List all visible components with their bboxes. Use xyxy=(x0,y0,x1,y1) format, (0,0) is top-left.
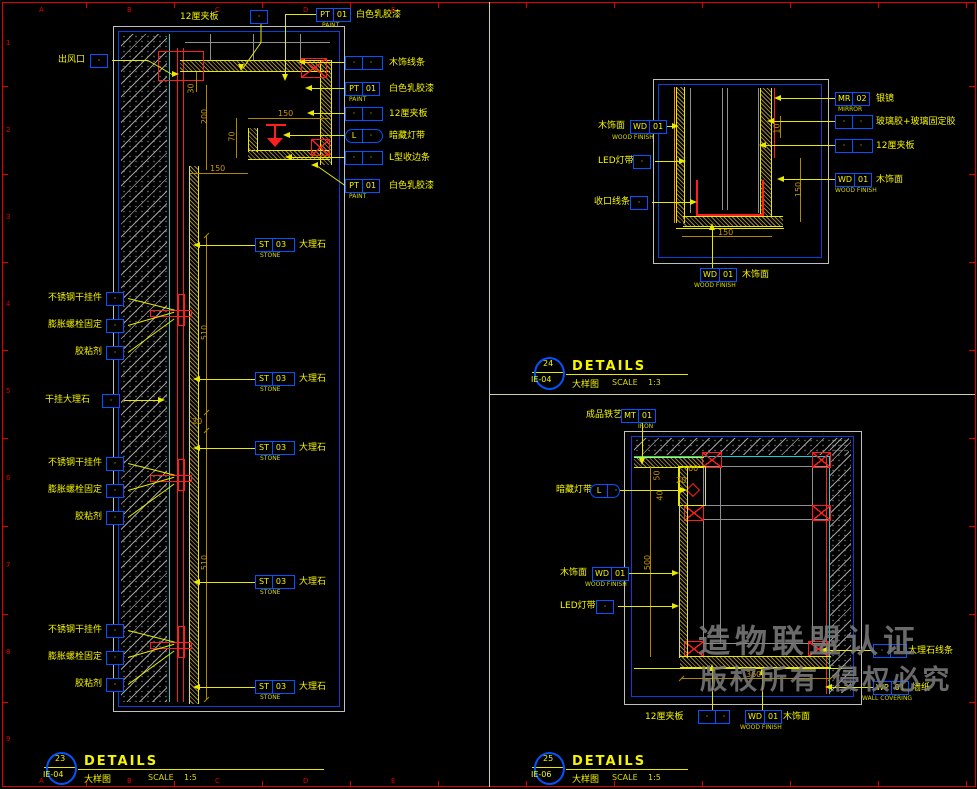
divider-horizontal xyxy=(489,394,975,395)
callout-box: MT 01 xyxy=(621,409,656,423)
leader-line xyxy=(261,23,262,43)
callout-code: · xyxy=(634,156,650,168)
border-tick xyxy=(86,2,87,8)
callout-code: · xyxy=(362,108,379,120)
callout-code: · xyxy=(631,197,647,209)
red-profile xyxy=(762,180,764,216)
row-number: 9 xyxy=(6,735,10,743)
leader-arrow xyxy=(285,154,292,160)
callout-code: · xyxy=(852,140,869,152)
dimension-label: 150 xyxy=(718,228,733,237)
callout-box: PT 01 xyxy=(345,82,380,96)
dimension-label: 510 xyxy=(200,325,209,340)
callout-box: ST 03 xyxy=(255,575,295,589)
callout-code: 01 xyxy=(333,9,350,21)
border-tick xyxy=(969,174,975,175)
dimension-label: 150 xyxy=(278,109,293,118)
border-tick xyxy=(969,262,975,263)
callout-box: L · xyxy=(590,484,620,498)
callout-box: · xyxy=(106,319,124,333)
border-tick xyxy=(2,262,8,263)
callout-subtitle: WOOD FINISH xyxy=(694,282,736,289)
callout-label: 大理石 xyxy=(299,240,326,250)
leader-line xyxy=(285,14,316,15)
callout-code: 01 xyxy=(649,121,666,133)
callout-label: 膨胀螺栓固定 xyxy=(48,485,102,495)
zone-letter: A xyxy=(39,6,44,14)
scale-label: SCALE xyxy=(612,378,638,387)
detail-title: DETAILS xyxy=(572,359,646,374)
callout-subtitle: STONE xyxy=(260,455,280,462)
callout-box: · xyxy=(630,196,648,210)
concrete-wall-hatch xyxy=(121,34,167,702)
watermark-line2: 版权所有 侵权必究 xyxy=(700,658,952,697)
frame-line xyxy=(703,505,828,506)
title-underline xyxy=(566,374,688,375)
callout-code: 01 xyxy=(719,269,736,281)
wood-base-hatch xyxy=(683,216,783,227)
panel-line xyxy=(758,88,759,213)
zone-letter: B xyxy=(127,6,132,14)
callout-box: · xyxy=(633,155,651,169)
zone-letter: C xyxy=(215,777,220,785)
leader-arrow xyxy=(307,110,314,116)
leader-line xyxy=(652,202,694,203)
callout-box: · xyxy=(106,457,124,471)
leader-line xyxy=(285,14,286,76)
callout-subtitle: MIRROR xyxy=(838,106,862,113)
panel-line xyxy=(690,88,691,213)
leader-arrow xyxy=(238,64,244,71)
callout-label: 木饰面 xyxy=(560,568,587,578)
border-tick xyxy=(702,2,703,8)
callout-box: · · xyxy=(345,107,383,121)
callout-box: WD 01 xyxy=(592,567,629,581)
sheet-code: IE-04 xyxy=(43,770,63,779)
callout-code: 03 xyxy=(272,373,289,385)
callout-label: L型收边条 xyxy=(389,153,430,163)
leader-arrow xyxy=(193,242,200,248)
callout-box: · xyxy=(106,678,124,692)
callout-code: 01 xyxy=(362,83,379,95)
scale-value: 1:5 xyxy=(184,773,197,782)
steel-keel-line xyxy=(183,48,184,702)
border-tick xyxy=(878,781,879,787)
detail-name: 大样图 xyxy=(572,377,599,390)
waterproof-line xyxy=(169,34,170,702)
border-tick xyxy=(969,526,975,527)
spotlight-icon xyxy=(266,124,286,126)
callout-label: 干挂大理石 xyxy=(45,395,90,405)
callout-box: · xyxy=(106,651,124,665)
callout-code: · xyxy=(715,711,732,723)
dimension-label: 40 xyxy=(656,490,665,500)
callout-label: 胶粘剂 xyxy=(75,347,102,357)
dimension-label: 10 xyxy=(773,123,782,133)
detail-number: 25 xyxy=(543,754,553,763)
callout-box: ST 03 xyxy=(255,372,295,386)
callout-code: · xyxy=(107,512,123,524)
leader-arrow xyxy=(774,95,781,101)
ceiling-line xyxy=(185,42,330,43)
callout-code: 03 xyxy=(272,239,289,251)
callout-code: · xyxy=(836,140,852,152)
leader-arrow xyxy=(679,158,686,164)
dimension-label: 200 xyxy=(200,109,209,124)
edge-detail-red xyxy=(158,51,204,81)
border-tick xyxy=(966,2,967,8)
dim-line xyxy=(190,173,248,174)
callout-box: · · xyxy=(698,710,730,724)
callout-subtitle: STONE xyxy=(260,694,280,701)
callout-code: · xyxy=(597,601,613,613)
leader-arrow xyxy=(672,123,679,129)
leader-arrow xyxy=(777,176,784,182)
border-tick xyxy=(969,350,975,351)
callout-code: 01 xyxy=(611,568,628,580)
dimension-label: 150 xyxy=(794,182,803,197)
border-tick xyxy=(878,2,879,8)
dimension-label: 70 xyxy=(228,131,237,141)
callout-subtitle: PAINT xyxy=(322,22,339,29)
callout-label: 胶粘剂 xyxy=(75,512,102,522)
border-tick xyxy=(969,702,975,703)
scale-value: 1:5 xyxy=(648,773,661,782)
row-number: 1 xyxy=(6,39,10,47)
callout-box: ST 03 xyxy=(255,680,295,694)
callout-code: WD xyxy=(746,711,764,723)
callout-label: 玻璃胶+玻璃固定胶 xyxy=(876,117,956,127)
callout-box: · xyxy=(106,511,124,525)
callout-label: 大理石 xyxy=(299,682,326,692)
border-tick xyxy=(526,781,527,787)
leader-line xyxy=(628,573,676,574)
dim-line xyxy=(206,85,207,170)
spotlight-icon xyxy=(274,126,276,138)
callout-code: ST xyxy=(256,681,272,693)
callout-code: · xyxy=(107,293,123,305)
leader-arrow xyxy=(709,223,715,230)
callout-code: 01 xyxy=(764,711,781,723)
callout-label: 12厘夹板 xyxy=(645,712,683,722)
callout-label: 白色乳胶漆 xyxy=(356,10,401,20)
border-tick xyxy=(790,2,791,8)
callout-code: WD xyxy=(701,269,719,281)
leader-arrow xyxy=(172,71,179,77)
callout-code: 01 xyxy=(638,410,655,422)
zone-letter: B xyxy=(127,777,132,785)
callout-label: 大理石 xyxy=(299,577,326,587)
row-number: 3 xyxy=(6,213,10,221)
blocking-x xyxy=(812,505,831,521)
callout-subtitle: STONE xyxy=(260,386,280,393)
leader-line xyxy=(124,400,162,401)
callout-code: · xyxy=(346,57,362,69)
callout-code: L xyxy=(591,485,607,497)
border-tick xyxy=(2,438,8,439)
leader-line xyxy=(774,121,835,122)
leader-arrow xyxy=(158,397,165,403)
callout-label: 暗藏灯带 xyxy=(389,131,425,141)
title-underline xyxy=(78,769,324,770)
callout-label: 木饰面 xyxy=(598,121,625,131)
callout-code: ST xyxy=(256,239,272,251)
leader-line xyxy=(112,60,148,61)
leader-line xyxy=(618,490,684,491)
callout-code: · xyxy=(107,625,123,637)
zone-letter: D xyxy=(303,6,308,14)
callout-label: 木饰线条 xyxy=(389,58,425,68)
callout-box: WD 01 xyxy=(835,173,872,187)
callout-box: · xyxy=(596,600,614,614)
callout-code: · xyxy=(362,130,379,142)
sheet-code: IE-06 xyxy=(531,770,551,779)
leader-arrow xyxy=(305,85,312,91)
border-tick xyxy=(969,614,975,615)
leader-arrow xyxy=(759,142,766,148)
callout-label: 白色乳胶漆 xyxy=(389,181,434,191)
callout-subtitle: WOOD FINISH xyxy=(612,134,654,141)
callout-label: 收口线条 xyxy=(594,197,630,207)
callout-label: 不锈钢干挂件 xyxy=(48,458,102,468)
callout-box: WD 01 xyxy=(745,710,782,724)
border-left xyxy=(2,2,3,787)
border-right xyxy=(975,2,976,787)
blocking-x xyxy=(812,452,831,468)
callout-label: 膨胀螺栓固定 xyxy=(48,652,102,662)
panel-line xyxy=(727,88,728,210)
callout-label: 不锈钢干挂件 xyxy=(48,293,102,303)
callout-box: · xyxy=(102,394,120,408)
row-number: 6 xyxy=(6,474,10,482)
border-tick xyxy=(2,350,8,351)
callout-code: · xyxy=(107,347,123,359)
callout-box: · · xyxy=(835,115,873,129)
detail-title: DETAILS xyxy=(84,754,158,769)
callout-box: · xyxy=(90,54,108,68)
title-underline xyxy=(566,769,688,770)
callout-label: 木饰面 xyxy=(876,175,903,185)
dimension-label: 50 xyxy=(653,470,662,480)
sheet-code: IE-04 xyxy=(531,375,551,384)
dimension-label: 30 xyxy=(187,83,196,93)
leader-arrow xyxy=(193,684,200,690)
zone-letter: E xyxy=(391,777,395,785)
callout-label: 木饰面 xyxy=(742,270,769,280)
dimension-label: 150 xyxy=(210,164,225,173)
scale-label: SCALE xyxy=(148,773,174,782)
callout-code: ST xyxy=(256,442,272,454)
dimension-label: 60 xyxy=(688,464,698,473)
leader-line xyxy=(618,606,676,607)
border-tick xyxy=(174,781,175,787)
row-number: 5 xyxy=(6,387,10,395)
callout-box: WD 01 xyxy=(700,268,737,282)
leader-line xyxy=(781,98,835,99)
spotlight-icon xyxy=(267,138,283,147)
leader-line xyxy=(312,88,345,89)
callout-subtitle: WOOD FINISH xyxy=(835,187,877,194)
scale-value: 1:3 xyxy=(648,378,661,387)
leader-arrow xyxy=(680,487,687,493)
border-tick xyxy=(702,781,703,787)
border-tick xyxy=(2,702,8,703)
leader-line xyxy=(784,179,835,180)
callout-code: · xyxy=(607,485,624,497)
callout-code: · xyxy=(362,57,379,69)
callout-code: MT xyxy=(622,410,638,422)
callout-code: 03 xyxy=(272,681,289,693)
callout-code: PT xyxy=(346,180,362,192)
callout-code: · xyxy=(107,458,123,470)
ceiling-line xyxy=(253,34,254,60)
leader-arrow xyxy=(672,603,679,609)
callout-box: · xyxy=(106,624,124,638)
callout-code: · xyxy=(852,116,869,128)
ceiling-line xyxy=(210,34,211,60)
leader-arrow xyxy=(311,162,318,168)
red-profile xyxy=(696,180,698,216)
border-tick xyxy=(526,2,527,8)
callout-box: ST 03 xyxy=(255,238,295,252)
ceiling-line xyxy=(300,34,301,60)
dim-line xyxy=(196,72,197,92)
callout-code: L xyxy=(346,130,362,142)
leader-line xyxy=(314,113,345,114)
callout-label: 12厘夹板 xyxy=(389,109,427,119)
callout-code: ST xyxy=(256,373,272,385)
callout-code: ST xyxy=(256,576,272,588)
row-number: 4 xyxy=(6,300,10,308)
callout-code: MR xyxy=(836,93,852,105)
callout-label: 银镜 xyxy=(876,94,894,104)
detail-name: 大样图 xyxy=(572,772,599,785)
leader-arrow xyxy=(193,579,200,585)
callout-subtitle: PAINT xyxy=(349,96,366,103)
anchor-clamp xyxy=(178,626,185,658)
callout-label: 大理石 xyxy=(299,374,326,384)
callout-label: 成品铁艺 xyxy=(586,410,622,420)
border-tick xyxy=(438,781,439,787)
callout-box: ST 03 xyxy=(255,441,295,455)
border-tick xyxy=(790,781,791,787)
callout-box: · xyxy=(250,10,268,24)
callout-label: 白色乳胶漆 xyxy=(389,84,434,94)
callout-code: · xyxy=(107,652,123,664)
callout-code: WD xyxy=(593,568,611,580)
callout-code: · xyxy=(107,679,123,691)
scale-label: SCALE xyxy=(612,773,638,782)
leader-line xyxy=(198,582,255,583)
callout-code: · xyxy=(107,320,123,332)
border-tick xyxy=(614,2,615,8)
callout-code: · xyxy=(107,485,123,497)
border-tick xyxy=(2,174,8,175)
callout-label: 不锈钢干挂件 xyxy=(48,625,102,635)
border-tick xyxy=(2,86,8,87)
dim-chain-line xyxy=(206,235,207,700)
leader-line xyxy=(198,379,255,380)
callout-box: · xyxy=(106,484,124,498)
border-tick xyxy=(262,781,263,787)
callout-code: 01 xyxy=(362,180,379,192)
leader-line xyxy=(292,157,345,158)
steel-keel-line xyxy=(177,48,178,702)
border-tick xyxy=(969,86,975,87)
callout-code: · xyxy=(91,55,107,67)
detail-number: 23 xyxy=(55,754,65,763)
border-tick xyxy=(966,781,967,787)
leader-line xyxy=(198,245,255,246)
callout-code: 03 xyxy=(272,442,289,454)
anchor-clamp xyxy=(178,294,185,326)
callout-subtitle: PAINT xyxy=(349,193,366,200)
border-tick xyxy=(969,438,975,439)
callout-code: · xyxy=(346,108,362,120)
border-tick xyxy=(438,2,439,8)
callout-code: · xyxy=(251,11,267,23)
callout-code: · xyxy=(699,711,715,723)
callout-box: · xyxy=(106,346,124,360)
border-tick xyxy=(262,2,263,8)
leader-line xyxy=(766,145,835,146)
row-number: 8 xyxy=(6,648,10,656)
callout-subtitle: WOOD FINISH xyxy=(585,581,627,588)
callout-box: PT 01 xyxy=(345,179,380,193)
drawing-sheet: A B C D E A B C D E 1 2 3 4 5 6 7 8 9 xyxy=(0,0,977,789)
leader-arrow xyxy=(193,376,200,382)
border-tick xyxy=(2,526,8,527)
callout-label: LED灯带 xyxy=(560,601,596,611)
callout-label: LED灯带 xyxy=(598,156,634,166)
callout-box: · xyxy=(106,292,124,306)
detail-number: 24 xyxy=(543,359,553,368)
leader-line xyxy=(712,228,713,268)
callout-subtitle: STONE xyxy=(260,252,280,259)
frame-line xyxy=(703,519,828,520)
callout-box: · · xyxy=(345,56,383,70)
dim-line xyxy=(248,118,330,119)
border-tick xyxy=(350,781,351,787)
callout-box: WD 01 xyxy=(630,120,667,134)
leader-arrow xyxy=(282,74,288,81)
panel-line xyxy=(722,88,723,210)
callout-subtitle: IRON xyxy=(638,423,653,430)
leader-arrow xyxy=(690,199,697,205)
dimension-label: 20 xyxy=(676,476,686,485)
callout-code: PT xyxy=(317,9,333,21)
callout-code: 01 xyxy=(854,174,871,186)
blocking-x xyxy=(311,139,330,156)
callout-label: 木饰面 xyxy=(783,712,810,722)
row-number: 7 xyxy=(6,561,10,569)
callout-label: 12厘夹板 xyxy=(180,12,218,22)
leader-arrow xyxy=(298,59,305,65)
callout-label: 胶粘剂 xyxy=(75,679,102,689)
leader-line xyxy=(305,62,345,63)
border-tick xyxy=(2,614,8,615)
callout-code: · xyxy=(362,152,379,164)
light-cove-board xyxy=(248,128,258,152)
callout-code: 02 xyxy=(852,93,869,105)
callout-code: · xyxy=(346,152,362,164)
callout-label: 膨胀螺栓固定 xyxy=(48,320,102,330)
detail-name: 大样图 xyxy=(84,772,111,785)
callout-box: · · xyxy=(345,151,383,165)
callout-box: PT 01 xyxy=(316,8,351,22)
callout-code: · xyxy=(836,116,852,128)
callout-subtitle: STONE xyxy=(260,589,280,596)
